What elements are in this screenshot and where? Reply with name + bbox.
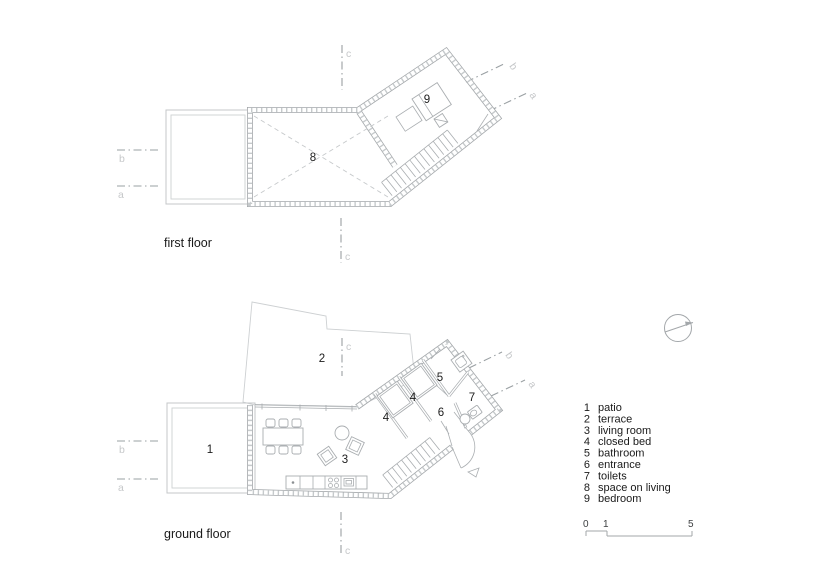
section-label: c — [346, 48, 351, 60]
legend-item-num: 9 — [584, 493, 590, 505]
section-label: b — [119, 153, 125, 165]
legend-item-label: closed bed — [598, 436, 651, 448]
washbasin-icon — [460, 414, 470, 424]
north-needle — [685, 322, 693, 327]
legend-item-num: 4 — [584, 436, 590, 448]
room-number-closed-bed-1: 4 — [383, 412, 390, 424]
chair-icon — [292, 419, 301, 427]
legend: 1 patio 2 terrace 3 living room 4 closed… — [584, 402, 671, 505]
legend-item-num: 8 — [584, 482, 590, 494]
bed-icon — [412, 83, 451, 121]
first-floor-plan: c c b a b a — [117, 45, 540, 263]
dining-table — [263, 419, 303, 454]
section-line-a-right — [489, 93, 527, 111]
section-label: a — [118, 482, 124, 494]
patio-roof-outline — [166, 110, 250, 204]
lounge-area — [317, 426, 364, 466]
armchair-icon — [346, 437, 365, 456]
chair-icon — [279, 446, 288, 454]
scale-bar-line — [586, 531, 692, 536]
chair-icon — [279, 419, 288, 427]
section-label: c — [345, 251, 350, 263]
glass-facade — [255, 404, 357, 412]
scale-tick-label: 0 — [583, 519, 589, 530]
room-number-terrace: 2 — [319, 353, 325, 365]
section-label: b — [507, 61, 520, 73]
architectural-drawing-page: c c b a b a — [0, 0, 818, 578]
legend-item-label: space on living — [598, 482, 671, 494]
room-number-space-on-living: 8 — [310, 152, 316, 164]
entrance-door — [452, 433, 475, 468]
legend-item-label: patio — [598, 402, 622, 414]
north-indicator-icon — [665, 315, 694, 342]
section-line-b-right — [466, 63, 506, 82]
scale-tick-label: 5 — [688, 519, 694, 530]
section-label: c — [346, 341, 351, 353]
section-label: a — [527, 90, 540, 102]
legend-item-label: terrace — [598, 413, 632, 425]
scale-tick-label: 1 — [603, 519, 609, 530]
appliance-dot — [292, 481, 295, 484]
legend-item-num: 5 — [584, 448, 590, 460]
legend-item-num: 1 — [584, 402, 590, 414]
legend-item-label: toilets — [598, 470, 627, 482]
legend-item-num: 7 — [584, 470, 590, 482]
legend-item-num: 6 — [584, 459, 590, 471]
room-number-patio: 1 — [207, 444, 213, 456]
room-number-closed-bed-2: 4 — [410, 392, 417, 404]
room-number-living-room: 3 — [342, 454, 348, 466]
fixture — [434, 114, 448, 128]
legend-item-num: 3 — [584, 425, 590, 437]
section-label: b — [119, 444, 125, 456]
ground-floor-title: ground floor — [164, 527, 231, 541]
chair-icon — [266, 446, 275, 454]
floor-plan-drawing: c c b a b a — [0, 0, 818, 578]
chair-icon — [266, 419, 275, 427]
chair-icon — [292, 446, 301, 454]
section-label: a — [526, 379, 539, 391]
room-number-bathroom: 5 — [437, 372, 443, 384]
section-line-b-right — [469, 352, 502, 368]
patio-roof-inner-outline — [171, 115, 245, 199]
section-line-a-right — [491, 380, 525, 396]
ground-floor-plan: c c b a b a — [117, 302, 539, 557]
section-label: b — [503, 350, 516, 362]
section-label: a — [118, 189, 124, 201]
coffee-table-icon — [335, 426, 349, 440]
legend-item-label: entrance — [598, 459, 641, 471]
legend-item-label: living room — [598, 425, 651, 437]
section-label: c — [345, 545, 350, 557]
entrance-arrow-icon — [468, 468, 479, 477]
kitchen-counter — [286, 476, 367, 489]
first-floor-title: first floor — [164, 236, 212, 250]
room-number-entrance: 6 — [438, 407, 444, 419]
room-number-toilets: 7 — [469, 392, 475, 404]
armchair-icon — [317, 446, 336, 465]
legend-item-label: bathroom — [598, 448, 644, 460]
rug — [396, 106, 422, 131]
scale-bar: 0 1 5 — [583, 519, 694, 536]
legend-item-num: 2 — [584, 413, 590, 425]
room-number-bedroom: 9 — [424, 94, 430, 106]
legend-item-label: bedroom — [598, 493, 641, 505]
